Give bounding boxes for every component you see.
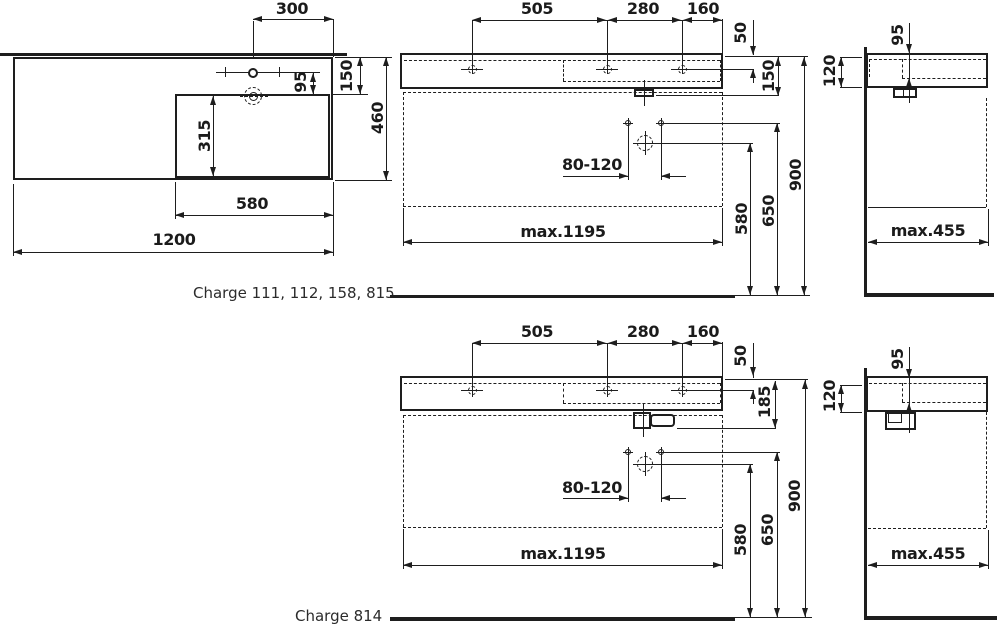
- dimension-arrowhead: [713, 239, 722, 245]
- dimension-arrowhead: [210, 96, 216, 105]
- dimension-arrowhead: [747, 608, 753, 617]
- caption-variant-top: Charge 111, 112, 158, 815: [193, 286, 395, 301]
- dimension-line-h: [840, 412, 862, 413]
- dimension-arrowhead: [906, 369, 912, 378]
- outline-rect: [888, 412, 902, 423]
- dimension-arrowhead: [683, 340, 692, 346]
- hidden-edge-dashed-v: [722, 92, 723, 206]
- dimension-line-h: [868, 565, 988, 566]
- dim-label-fb-580: 580: [733, 524, 749, 556]
- dimension-arrowhead: [750, 46, 756, 55]
- dimension-arrowhead: [672, 340, 681, 346]
- technical-drawing-canvas: 300 150 95 460 315 580 1200 505 280 160 …: [0, 0, 1000, 633]
- dimension-line-h: [735, 295, 810, 296]
- dimension-arrowhead: [774, 123, 780, 132]
- hidden-edge-dashed-v: [986, 98, 987, 207]
- dimension-line-h: [725, 56, 808, 57]
- dimension-line-v: [777, 123, 778, 296]
- dimension-line-h: [403, 242, 722, 243]
- dimension-line-h: [657, 143, 753, 144]
- dimension-line-v: [750, 143, 751, 296]
- floor-line: [864, 293, 994, 297]
- dimension-arrowhead: [383, 57, 389, 66]
- dim-label-ft-80-120: 80-120: [562, 157, 622, 173]
- hole-symbol-dashed-circle: [678, 65, 687, 74]
- dimension-arrowhead: [253, 16, 262, 22]
- dimension-line-h: [868, 242, 988, 243]
- hidden-edge-dashed-h: [868, 528, 986, 529]
- dimension-line-v: [386, 57, 387, 180]
- dimension-arrowhead: [357, 57, 363, 66]
- hole-symbol-circle: [625, 120, 631, 126]
- dimension-line-h: [657, 464, 753, 465]
- dim-label-sb-max455: max.455: [891, 546, 965, 562]
- dimension-arrowhead: [175, 212, 184, 218]
- dimension-arrowhead: [619, 173, 628, 179]
- hole-symbol-circle: [249, 92, 258, 101]
- dimension-arrowhead: [868, 562, 877, 568]
- dimension-arrowhead: [838, 57, 844, 66]
- dimension-arrowhead: [472, 340, 481, 346]
- hidden-edge-dashed-h: [403, 92, 722, 93]
- hidden-edge-dashed-v: [986, 412, 987, 528]
- dimension-arrowhead: [672, 17, 681, 23]
- dim-label-fb-185: 185: [757, 386, 773, 418]
- outline-rect: [893, 88, 917, 98]
- dimension-arrowhead: [683, 17, 692, 23]
- dim-label-fb-50: 50: [733, 345, 749, 366]
- dimension-line-h: [332, 94, 368, 95]
- outline-rect: [866, 376, 988, 412]
- dimension-line-h: [666, 452, 780, 453]
- dimension-arrowhead: [774, 452, 780, 461]
- dimension-arrowhead: [403, 562, 412, 568]
- dimension-arrowhead: [619, 495, 628, 501]
- dimension-arrowhead: [310, 73, 316, 82]
- outline-rect: [634, 89, 654, 97]
- dimension-arrowhead: [13, 249, 22, 255]
- dimension-arrowhead: [403, 239, 412, 245]
- dimension-arrowhead: [772, 381, 778, 390]
- dim-label-fb-505: 505: [521, 324, 553, 340]
- dimension-arrowhead: [713, 340, 722, 346]
- dim-label-plan-150: 150: [339, 60, 355, 92]
- hidden-edge-dashed-v: [722, 415, 723, 527]
- floor-line: [864, 616, 997, 620]
- dimension-line-h: [666, 123, 780, 124]
- hidden-edge-dashed-v: [403, 92, 404, 206]
- dimension-line-h: [656, 95, 779, 96]
- dimension-arrowhead: [324, 16, 333, 22]
- dimension-arrowhead: [747, 464, 753, 473]
- dimension-line-v: [333, 182, 334, 256]
- dim-label-ft-50: 50: [733, 22, 749, 43]
- hole-symbol-circle: [625, 449, 631, 455]
- dimension-line-h: [677, 428, 776, 429]
- dim-label-fb-650: 650: [760, 514, 776, 546]
- dimension-arrowhead: [774, 608, 780, 617]
- dimension-line-h: [725, 379, 808, 380]
- dimension-line-v: [750, 464, 751, 617]
- dimension-arrowhead: [324, 212, 333, 218]
- dimension-arrowhead: [597, 340, 606, 346]
- hole-symbol-dashed-circle: [678, 386, 687, 395]
- dimension-line-v: [777, 452, 778, 617]
- dimension-line-v: [722, 529, 723, 569]
- dimension-line-v: [333, 19, 334, 57]
- dimension-arrowhead: [608, 17, 617, 23]
- dimension-line-v: [628, 456, 629, 502]
- dimension-arrowhead: [357, 85, 363, 94]
- dimension-arrowhead: [661, 173, 670, 179]
- dimension-arrowhead: [838, 385, 844, 394]
- dimension-line-v: [988, 209, 989, 246]
- dim-label-sb-95: 95: [890, 348, 906, 369]
- dim-label-fb-900: 900: [787, 480, 803, 512]
- caption-variant-bottom: Charge 814: [295, 609, 382, 624]
- dimension-arrowhead: [801, 57, 807, 66]
- hidden-edge-dashed-h: [403, 206, 722, 207]
- dimension-line-h: [403, 565, 722, 566]
- hole-symbol-circle: [658, 120, 664, 126]
- dimension-line-v: [628, 127, 629, 180]
- dimension-line-h: [335, 180, 392, 181]
- dim-label-ft-650: 650: [761, 195, 777, 227]
- dimension-arrowhead: [472, 17, 481, 23]
- dimension-arrowhead: [772, 419, 778, 428]
- hole-symbol-dashed-circle: [603, 386, 612, 395]
- dimension-arrowhead: [775, 57, 781, 66]
- dim-label-ft-160: 160: [687, 1, 719, 17]
- dim-label-fb-280: 280: [627, 324, 659, 340]
- dimension-arrowhead: [661, 495, 670, 501]
- dimension-line-h: [253, 19, 333, 20]
- outline-rect: [400, 376, 723, 411]
- dimension-line-v: [13, 184, 14, 256]
- dim-label-sb-120: 120: [822, 380, 838, 412]
- hidden-edge-dashed-h: [868, 207, 986, 208]
- dimension-line-h: [840, 87, 862, 88]
- dimension-arrowhead: [597, 17, 606, 23]
- outline-rect: [400, 53, 723, 89]
- outline-rect: [866, 53, 988, 88]
- dimension-arrowhead: [713, 17, 722, 23]
- hole-symbol-dashed-circle: [637, 456, 653, 472]
- dimension-arrowhead: [802, 380, 808, 389]
- floor-line: [390, 295, 735, 298]
- dimension-arrowhead: [868, 239, 877, 245]
- dimension-line-h: [13, 252, 333, 253]
- hidden-edge-dashed-v: [403, 415, 404, 527]
- dimension-arrowhead: [608, 340, 617, 346]
- dim-label-ft-505: 505: [521, 1, 553, 17]
- dim-label-ft-max1195: max.1195: [520, 224, 605, 240]
- hole-symbol-dashed-circle: [468, 65, 477, 74]
- dim-label-st-120: 120: [822, 55, 838, 87]
- hole-symbol-dashed-circle: [637, 135, 653, 151]
- dimension-line-v: [988, 530, 989, 569]
- dimension-arrowhead: [774, 286, 780, 295]
- dimension-arrowhead: [802, 608, 808, 617]
- dim-label-plan-460: 460: [370, 102, 386, 134]
- hole-symbol-circle: [658, 449, 664, 455]
- dim-label-plan-1200: 1200: [153, 232, 196, 248]
- dimension-arrowhead: [906, 403, 912, 412]
- dim-label-fb-max1195: max.1195: [520, 546, 605, 562]
- hole-symbol-circle: [248, 68, 258, 78]
- dimension-arrowhead: [979, 239, 988, 245]
- hole-symbol-dashed-circle: [603, 65, 612, 74]
- dim-label-fb-80-120: 80-120: [562, 480, 622, 496]
- dimension-line-v: [805, 380, 806, 617]
- hole-symbol-dashed-circle: [468, 386, 477, 395]
- outline-rect: [175, 94, 330, 178]
- dimension-line-v: [804, 57, 805, 296]
- dimension-arrowhead: [310, 85, 316, 94]
- dim-label-plan-580: 580: [236, 196, 268, 212]
- dimension-arrowhead: [979, 562, 988, 568]
- dimension-line-v: [722, 208, 723, 246]
- dimension-arrowhead: [906, 78, 912, 87]
- dim-label-st-max455: max.455: [891, 223, 965, 239]
- dim-label-ft-580: 580: [734, 203, 750, 235]
- dimension-arrowhead: [747, 286, 753, 295]
- dimension-arrowhead: [838, 78, 844, 87]
- outline-rect: [650, 414, 675, 427]
- dimension-arrowhead: [838, 403, 844, 412]
- dimension-line-v: [722, 342, 723, 376]
- floor-line: [390, 617, 735, 621]
- dimension-line-v: [722, 19, 723, 53]
- dimension-arrowhead: [324, 249, 333, 255]
- dimension-arrowhead: [750, 69, 756, 78]
- dimension-arrowhead: [210, 167, 216, 176]
- dimension-arrowhead: [750, 367, 756, 376]
- dimension-arrowhead: [747, 143, 753, 152]
- dim-label-ft-280: 280: [627, 1, 659, 17]
- hidden-edge-dashed-h: [403, 527, 722, 528]
- dimension-arrowhead: [906, 44, 912, 53]
- dimension-line-h: [175, 215, 333, 216]
- dim-label-fb-160: 160: [687, 324, 719, 340]
- dimension-arrowhead: [713, 562, 722, 568]
- dimension-arrowhead: [750, 390, 756, 399]
- dimension-line-v: [253, 21, 254, 57]
- dimension-line-h: [735, 617, 812, 618]
- dimension-arrowhead: [383, 171, 389, 180]
- dim-label-ft-900: 900: [788, 159, 804, 191]
- dimension-arrowhead: [801, 286, 807, 295]
- dimension-arrowhead: [775, 87, 781, 96]
- outline-rect: [633, 412, 651, 429]
- dim-label-st-95: 95: [890, 24, 906, 45]
- floor-line: [0, 53, 347, 56]
- dim-label-plan-300: 300: [276, 1, 308, 17]
